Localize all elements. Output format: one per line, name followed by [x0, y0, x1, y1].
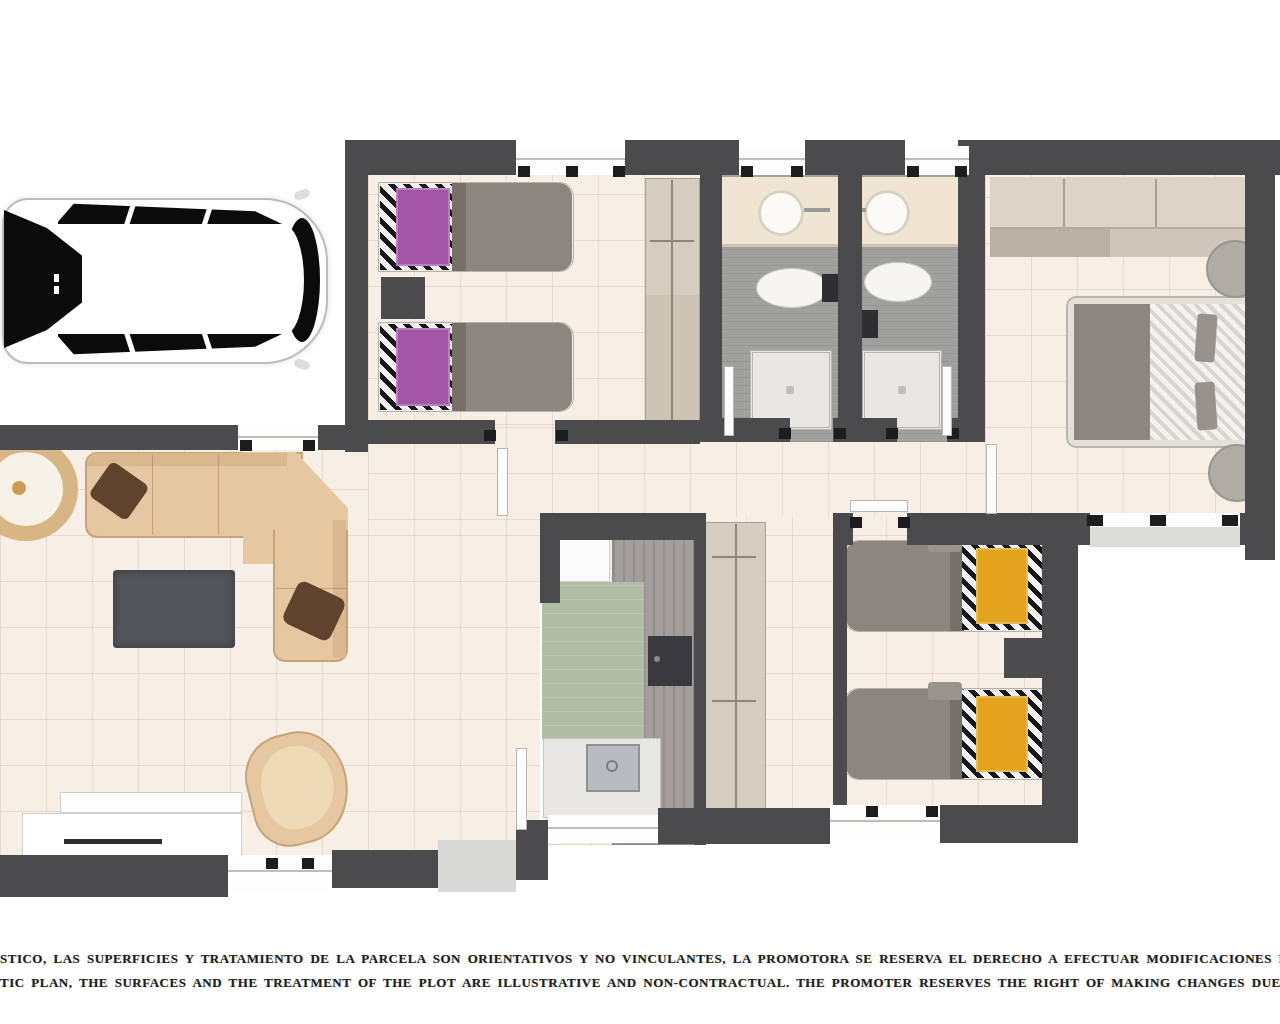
wall [940, 805, 1078, 843]
car-roof [266, 226, 304, 334]
door-leaf-bedroom-3 [850, 500, 908, 512]
single-bed-4-blanket [846, 689, 964, 779]
hallway-cabinet-split [735, 524, 737, 810]
window-frame [516, 158, 625, 160]
hallway-cabinet-handle-1 [712, 556, 756, 558]
bathroom-2-toilet [864, 262, 932, 302]
wall [540, 513, 694, 540]
cooktop-knob [654, 656, 660, 662]
door-frame-tick [850, 517, 862, 528]
window-frame-tick [926, 806, 938, 817]
single-bed-3-orange-runner [976, 548, 1028, 624]
bathroom-1-toilet [756, 268, 828, 308]
window-frame-tick [566, 166, 578, 177]
door-leaf-bedroom-1 [497, 448, 508, 516]
door-leaf-master [986, 444, 997, 514]
single-bed-1-fold [452, 183, 466, 271]
door-frame-tick [898, 517, 910, 528]
wall [1245, 140, 1275, 560]
wall [958, 140, 985, 442]
car-antenna-dot-1 [54, 274, 59, 282]
door-frame-tick [886, 428, 898, 439]
double-bed-pillow-1 [1194, 313, 1217, 362]
door-leaf-entrance [516, 748, 527, 830]
bathroom-1-cistern [822, 274, 838, 302]
window-frame-tick [955, 166, 967, 177]
wall [1042, 513, 1078, 813]
single-bed-4-sheet-flap [928, 682, 962, 700]
window-frame-tick [613, 166, 625, 177]
tv-unit [22, 813, 242, 857]
car-top-view [0, 190, 330, 370]
bathroom-1-faucet [804, 208, 830, 212]
floor-plan-canvas: STICO, LAS SUPERFICIES Y TRATAMIENTO DE … [0, 0, 1280, 1024]
wall [833, 513, 847, 813]
door-leaf-bathroom-1 [724, 366, 734, 436]
bedroom-3-nightstand [1004, 638, 1044, 678]
wall [345, 140, 368, 452]
wall [805, 140, 905, 175]
wall [700, 175, 722, 442]
bedroom-1-wardrobe-split [671, 180, 673, 426]
window-frame-tick [303, 440, 315, 451]
bedroom-1-nightstand [381, 277, 425, 319]
door-frame-tick [779, 428, 791, 439]
door-frame-tick [556, 430, 568, 441]
window-frame-tick [907, 166, 919, 177]
wall [555, 420, 700, 444]
wall [625, 140, 739, 175]
door-frame-tick [834, 428, 846, 439]
window-frame-tick [518, 166, 530, 177]
car-mirror-bottom [293, 358, 311, 372]
window-frame [228, 870, 332, 872]
bedroom-1-wardrobe-handle [650, 240, 694, 242]
window-frame-tick [266, 858, 278, 869]
single-bed-2-fold [452, 323, 466, 411]
wall [694, 513, 706, 845]
kitchen-sink-faucet [606, 760, 618, 772]
window-frame [238, 436, 318, 438]
single-bed-3-blanket [846, 541, 964, 631]
sofa-seam-2 [218, 455, 219, 535]
coffee-table [113, 570, 235, 648]
window-frame-tick [866, 806, 878, 817]
wall [0, 855, 228, 897]
rug-plant-dot [12, 481, 26, 495]
window [548, 815, 658, 843]
master-wardrobe [990, 177, 1248, 229]
tv-shelf [60, 792, 242, 813]
wall [0, 425, 238, 450]
window-frame-tick [1087, 515, 1103, 526]
window-sill [1090, 527, 1240, 547]
window-frame-tick [240, 440, 252, 451]
window-frame [739, 158, 805, 160]
window-frame-tick [1150, 515, 1166, 526]
window [830, 805, 940, 841]
single-bed-2-blanket [452, 323, 572, 411]
window-frame-tick [302, 858, 314, 869]
master-wardrobe-divider-2 [1155, 179, 1157, 227]
bathroom-2-drain [898, 386, 906, 394]
disclaimer-line-es: STICO, LAS SUPERFICIES Y TRATAMIENTO DE … [0, 951, 1280, 967]
tv-screen [64, 839, 162, 844]
sofa-seam-1 [152, 455, 153, 535]
wall [318, 425, 368, 450]
wall [332, 850, 438, 888]
single-bed-1-purple-runner [396, 188, 450, 266]
disclaimer-line-en: TIC PLAN, THE SURFACES AND THE TREATMENT… [0, 975, 1280, 991]
bathroom-2-cistern [862, 310, 878, 338]
bathroom-1-drain [786, 386, 794, 394]
wall [540, 513, 560, 603]
single-bed-2-purple-runner [396, 328, 450, 406]
wall [658, 808, 830, 844]
kitchen-mat [542, 582, 644, 740]
car-antenna-dot-2 [54, 286, 59, 294]
car-mirror-top [293, 188, 311, 202]
double-bed-blanket [1074, 304, 1150, 440]
window-frame-tick [1222, 515, 1238, 526]
master-wardrobe-divider-1 [1063, 179, 1065, 227]
window-frame [905, 158, 969, 160]
wall [345, 140, 516, 175]
bathroom-2-sink [864, 190, 910, 236]
wall [368, 420, 495, 444]
hallway-cabinet-handle-2 [712, 700, 756, 702]
bathroom-1-sink [758, 190, 804, 236]
porch-step [438, 840, 516, 892]
wall [907, 513, 985, 545]
window [228, 855, 332, 891]
door-frame-tick [484, 430, 496, 441]
sofa-backrest-right [333, 520, 346, 658]
wall [838, 175, 862, 442]
window-frame-tick [791, 166, 803, 177]
single-bed-1-blanket [452, 183, 572, 271]
wall [1240, 513, 1275, 545]
wall [969, 140, 1280, 175]
door-leaf-bathroom-2 [942, 366, 952, 436]
single-bed-4-orange-runner [976, 696, 1028, 772]
window-frame [548, 827, 658, 829]
double-bed-pillow-2 [1194, 381, 1217, 430]
master-wardrobe-shelf-left [990, 229, 1110, 257]
window-frame [830, 820, 940, 822]
window-frame-tick [741, 166, 753, 177]
